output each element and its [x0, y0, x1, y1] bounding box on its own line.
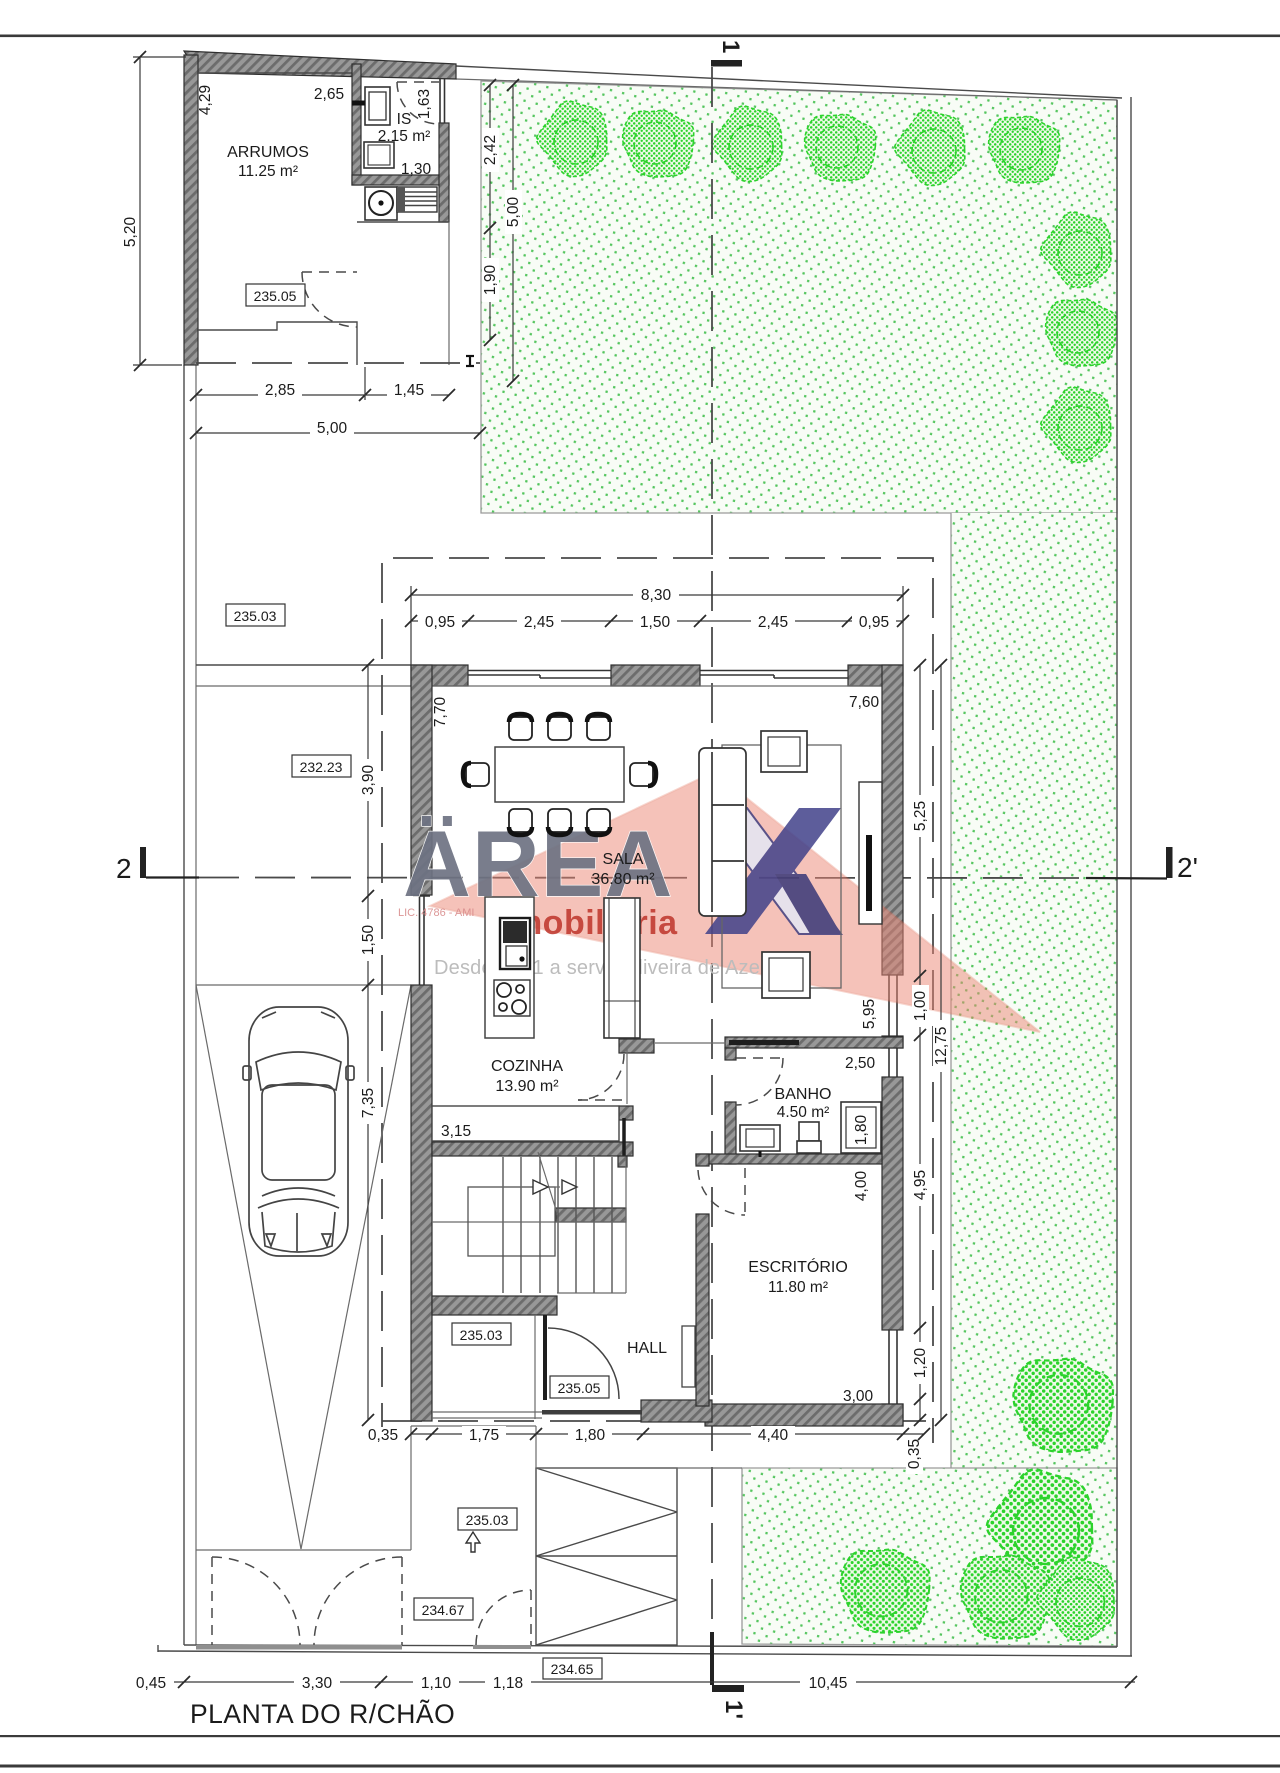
svg-text:235.03: 235.03	[234, 608, 277, 624]
svg-text:2,50: 2,50	[845, 1055, 876, 1072]
svg-text:1': 1'	[720, 1700, 747, 1719]
svg-text:1,18: 1,18	[493, 1675, 523, 1692]
svg-text:7,60: 7,60	[849, 694, 880, 711]
svg-text:1,50: 1,50	[640, 614, 671, 631]
svg-text:36.80 m²: 36.80 m²	[591, 871, 655, 888]
svg-text:4,95: 4,95	[912, 1170, 929, 1200]
svg-text:2,65: 2,65	[314, 86, 344, 103]
svg-text:7,70: 7,70	[432, 697, 449, 728]
svg-text:235.03: 235.03	[460, 1327, 503, 1343]
svg-text:3,00: 3,00	[843, 1388, 874, 1405]
svg-text:LIC. 4786 - AMI: LIC. 4786 - AMI	[398, 907, 474, 919]
svg-text:1,00: 1,00	[912, 991, 929, 1022]
svg-text:1: 1	[717, 40, 744, 53]
svg-text:234.67: 234.67	[422, 1602, 465, 1618]
svg-text:2': 2'	[1177, 852, 1198, 883]
svg-text:2,85: 2,85	[265, 382, 295, 399]
svg-text:0,95: 0,95	[859, 614, 889, 631]
svg-text:1,10: 1,10	[421, 1675, 452, 1692]
svg-text:IS: IS	[397, 111, 412, 128]
svg-text:5,95: 5,95	[861, 999, 878, 1029]
svg-text:COZINHA: COZINHA	[491, 1058, 563, 1075]
svg-text:1,75: 1,75	[469, 1427, 499, 1444]
svg-text:BANHO: BANHO	[775, 1086, 832, 1103]
svg-text:5,00: 5,00	[317, 420, 348, 437]
svg-text:ESCRITÓRIO: ESCRITÓRIO	[748, 1257, 848, 1276]
svg-text:0,35: 0,35	[906, 1439, 923, 1469]
svg-text:1,80: 1,80	[575, 1427, 606, 1444]
svg-text:1,80: 1,80	[853, 1115, 870, 1146]
svg-text:1,50: 1,50	[360, 925, 377, 956]
svg-text:8,30: 8,30	[641, 587, 672, 604]
svg-text:11.25 m²: 11.25 m²	[238, 163, 298, 180]
svg-text:0,95: 0,95	[425, 614, 455, 631]
svg-text:12,75: 12,75	[933, 1027, 950, 1066]
svg-text:0,35: 0,35	[368, 1427, 398, 1444]
svg-text:10,45: 10,45	[809, 1675, 848, 1692]
svg-text:3,30: 3,30	[302, 1675, 333, 1692]
svg-text:235.05: 235.05	[558, 1380, 601, 1396]
svg-text:3,15: 3,15	[441, 1123, 471, 1140]
svg-text:PLANTA DO R/CHÃO: PLANTA DO R/CHÃO	[190, 1699, 455, 1729]
svg-text:4,29: 4,29	[197, 85, 214, 115]
svg-text:13.90 m²: 13.90 m²	[495, 1078, 559, 1095]
svg-text:5,00: 5,00	[505, 197, 522, 228]
svg-text:3,90: 3,90	[360, 765, 377, 796]
svg-text:1,45: 1,45	[394, 382, 424, 399]
svg-text:11.80 m²: 11.80 m²	[768, 1279, 828, 1296]
svg-text:2,42: 2,42	[482, 135, 499, 165]
svg-text:234.65: 234.65	[551, 1661, 594, 1677]
svg-text:4.50 m²: 4.50 m²	[777, 1104, 830, 1121]
svg-text:232.23: 232.23	[300, 759, 343, 775]
svg-text:1,20: 1,20	[912, 1348, 929, 1379]
svg-text:235.05: 235.05	[254, 288, 297, 304]
svg-text:4,40: 4,40	[758, 1427, 789, 1444]
svg-text:5,20: 5,20	[122, 217, 139, 248]
svg-text:7,35: 7,35	[360, 1088, 377, 1118]
svg-text:235.03: 235.03	[466, 1512, 509, 1528]
svg-text:5,25: 5,25	[912, 801, 929, 831]
svg-text:ARRUMOS: ARRUMOS	[227, 144, 309, 161]
svg-text:2,45: 2,45	[524, 614, 554, 631]
svg-text:1,90: 1,90	[482, 265, 499, 296]
svg-text:2,45: 2,45	[758, 614, 788, 631]
svg-text:1,63: 1,63	[416, 89, 433, 119]
svg-text:2.15 m²: 2.15 m²	[378, 128, 431, 145]
svg-text:SALA: SALA	[603, 851, 644, 868]
svg-text:4,00: 4,00	[853, 1171, 870, 1202]
svg-text:HALL: HALL	[627, 1340, 667, 1357]
svg-text:0,45: 0,45	[136, 1675, 166, 1692]
svg-text:1,30: 1,30	[401, 161, 432, 178]
svg-text:2: 2	[116, 853, 132, 884]
